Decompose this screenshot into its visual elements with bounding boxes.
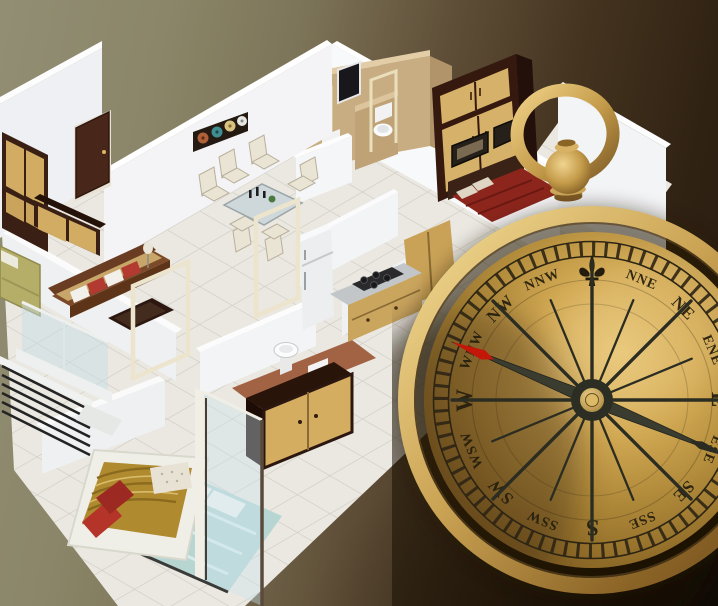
glass-partition <box>200 392 262 606</box>
scene: NNE NE ENE E ESE SE SSE S SSW SW WSW W W… <box>0 0 718 606</box>
compass-hub <box>571 379 613 421</box>
door-knob <box>102 150 106 154</box>
compass-ring-and-knob <box>515 88 617 204</box>
bed-gold <box>68 450 208 560</box>
entrance-door <box>74 110 111 202</box>
compass: NNE NE ENE E ESE SE SSE S SSW SW WSW W W… <box>392 70 718 606</box>
